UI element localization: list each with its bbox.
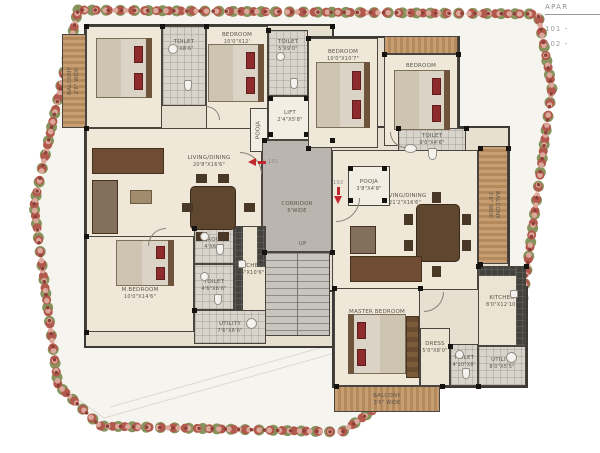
room-dims: 4'X6'6" xyxy=(195,244,233,251)
room-toilet-1: TOILET 5'X8'6" xyxy=(162,26,206,106)
unit-number: 102 xyxy=(333,180,343,186)
room-dims: 7'6"X6'6" xyxy=(195,328,265,335)
room-kitchen-101: KITCHEN 7'6"X10'6" xyxy=(234,226,266,318)
legend-item-101: 101 - xyxy=(545,25,600,33)
unit-101-marker: 101 xyxy=(248,158,278,166)
bed-headboard xyxy=(168,240,174,286)
pillow xyxy=(134,73,143,90)
kitchen-counter xyxy=(257,227,265,267)
sink xyxy=(200,232,209,241)
pillow xyxy=(357,322,366,339)
bed xyxy=(208,44,264,102)
kitchen-sink xyxy=(510,290,518,298)
pillow xyxy=(246,77,255,94)
bed xyxy=(96,38,152,98)
dining-table xyxy=(416,204,460,262)
room-dims: 2'6" WIDE xyxy=(74,36,81,126)
room-name: M.BEDROOM xyxy=(87,287,193,294)
bed xyxy=(348,314,406,374)
room-lift: LIFT 2'4"X5'8" xyxy=(268,96,312,140)
room-dims: 5'0"X8'0" xyxy=(421,348,449,355)
coffee-table xyxy=(130,190,152,204)
room-toilet-2: TOILET 5'X9'0" xyxy=(268,30,308,96)
unit-number: 101 xyxy=(268,159,278,165)
room-label: TOILET 4'6"X6'6" xyxy=(195,279,233,293)
pillow xyxy=(246,52,255,69)
kitchen-counter xyxy=(516,267,525,345)
room-corridor: CORRIDOR 6'WIDE xyxy=(262,140,332,252)
kitchen-sink xyxy=(238,260,246,268)
columns xyxy=(84,24,89,29)
room-name: TOILET xyxy=(269,39,307,46)
bed-blanket xyxy=(97,39,121,97)
room-name: TOILET xyxy=(399,133,465,140)
room-balcony-bottom: BALCONY 3'6" WIDE xyxy=(334,386,440,412)
toilet-bowl xyxy=(290,78,298,89)
room-dims: 8'0"X5'5" xyxy=(479,364,525,371)
bed-headboard xyxy=(364,62,370,128)
room-name: POOJA xyxy=(349,179,389,186)
room-name: CORRIDOR xyxy=(263,201,331,208)
bed-headboard xyxy=(348,314,354,374)
legend-title: APAR xyxy=(545,3,600,15)
top-right-ledge xyxy=(384,36,458,54)
staircase xyxy=(264,252,330,336)
room-label: POOJA 3'8"X4'8" xyxy=(349,179,389,193)
arrow-tail xyxy=(337,187,340,195)
arrow-down-icon xyxy=(334,196,342,204)
up-label: UP xyxy=(299,241,307,247)
toilet-bowl xyxy=(214,294,222,305)
toilet-bowl xyxy=(184,80,192,91)
room-toilet-m102: TOILET 4'10"X8' xyxy=(450,344,478,386)
sofa xyxy=(92,180,118,234)
room-dims: 2'4"X5'8" xyxy=(269,117,311,124)
room-name: LIFT xyxy=(269,110,311,117)
sofa xyxy=(350,256,422,282)
room-label: BALCONY 2'6" WIDE xyxy=(67,36,81,126)
sink xyxy=(168,44,178,54)
sink xyxy=(276,52,285,61)
room-name: BEDROOM xyxy=(309,49,377,56)
bed xyxy=(116,240,174,286)
washing-machine xyxy=(246,318,257,329)
room-label: M.BEDROOM 10'0"X14'6" xyxy=(87,287,193,301)
room-dims: 3'6" WIDE xyxy=(335,400,439,407)
room-dims: 3'8"X4'8" xyxy=(349,186,389,193)
room-label: LIFT 2'4"X5'8" xyxy=(269,110,311,124)
room-balcony-right: BALCONY 3'6" WIDE xyxy=(478,146,508,264)
legend: APAR 101 - 102 - xyxy=(545,3,600,55)
bed xyxy=(316,62,370,128)
room-label: CORRIDOR 6'WIDE xyxy=(263,201,331,215)
pillow xyxy=(432,105,441,122)
lift-corner-post xyxy=(268,96,273,101)
dining-chairs xyxy=(404,214,413,225)
room-name: BALCONY xyxy=(493,160,500,250)
pillow xyxy=(156,267,165,280)
bed-blanket xyxy=(395,71,419,129)
legend-item-102: 102 - xyxy=(545,40,600,48)
room-label: TOILET 5'X9'0" xyxy=(269,39,307,53)
room-name: BALCONY xyxy=(335,393,439,400)
bed-blanket xyxy=(209,45,233,101)
room-dims: 10'0"X14'6" xyxy=(87,294,193,301)
room-dress: DRESS 5'0"X8'0" xyxy=(420,328,450,386)
bed-headboard xyxy=(444,70,450,130)
room-dims: 5'X9'0" xyxy=(269,46,307,53)
toilet-bowl xyxy=(462,368,470,379)
sink xyxy=(200,272,209,281)
bed xyxy=(394,70,450,130)
bed-blanket xyxy=(117,241,142,285)
dining-table xyxy=(190,186,236,230)
armchair xyxy=(350,226,376,254)
room-dims: 6'WIDE xyxy=(263,208,331,215)
washing-machine xyxy=(506,352,517,363)
room-label: UTILITY 8'0"X5'5" xyxy=(479,357,525,371)
pillow xyxy=(352,71,361,90)
toilet-bowl xyxy=(428,148,437,160)
sink xyxy=(455,350,464,359)
room-utility-102: UTILITY 8'0"X5'5" xyxy=(478,346,526,386)
room-name: UTILITY xyxy=(479,357,525,364)
pillow xyxy=(156,246,165,259)
room-name: BALCONY xyxy=(67,36,74,126)
pillow xyxy=(432,78,441,95)
unit-102-marker: 102 xyxy=(333,180,343,204)
bed-headboard xyxy=(258,44,264,102)
sofa xyxy=(92,148,164,174)
arrow-tail xyxy=(258,161,266,164)
room-name: DRESS xyxy=(421,341,449,348)
room-label: DRESS 5'0"X8'0" xyxy=(421,341,449,355)
room-label: BALCONY 3'6" WIDE xyxy=(335,393,439,407)
room-name: TOILET xyxy=(195,279,233,286)
room-name: BEDROOM xyxy=(207,32,267,39)
arrow-left-icon xyxy=(248,158,256,166)
room-label: BALCONY 3'6" WIDE xyxy=(486,160,500,250)
room-kitchen-102: KITCHEN 8'0"X12'10" xyxy=(478,266,526,346)
room-dims: 3'6" WIDE xyxy=(486,160,493,250)
room-balcony-top-left: BALCONY 2'6" WIDE xyxy=(62,34,86,128)
pillow xyxy=(352,100,361,119)
pillow xyxy=(134,46,143,63)
pooja-corner-post xyxy=(348,166,353,171)
bed-blanket xyxy=(317,63,340,127)
room-p-room: P.ROOM 4'X6'6" xyxy=(194,226,234,264)
floor-plan-page: BALCONY 2'6" WIDE BALCONY 3'6" WIDE BALC… xyxy=(0,0,600,453)
wardrobe xyxy=(406,316,419,378)
bed-blanket xyxy=(380,315,405,373)
dining-chairs xyxy=(196,174,207,183)
pillow xyxy=(357,349,366,366)
bed-headboard xyxy=(146,38,152,98)
room-dims: 4'6"X6'6" xyxy=(195,286,233,293)
kitchen-counter xyxy=(235,227,243,317)
toilet-bowl xyxy=(216,244,224,255)
